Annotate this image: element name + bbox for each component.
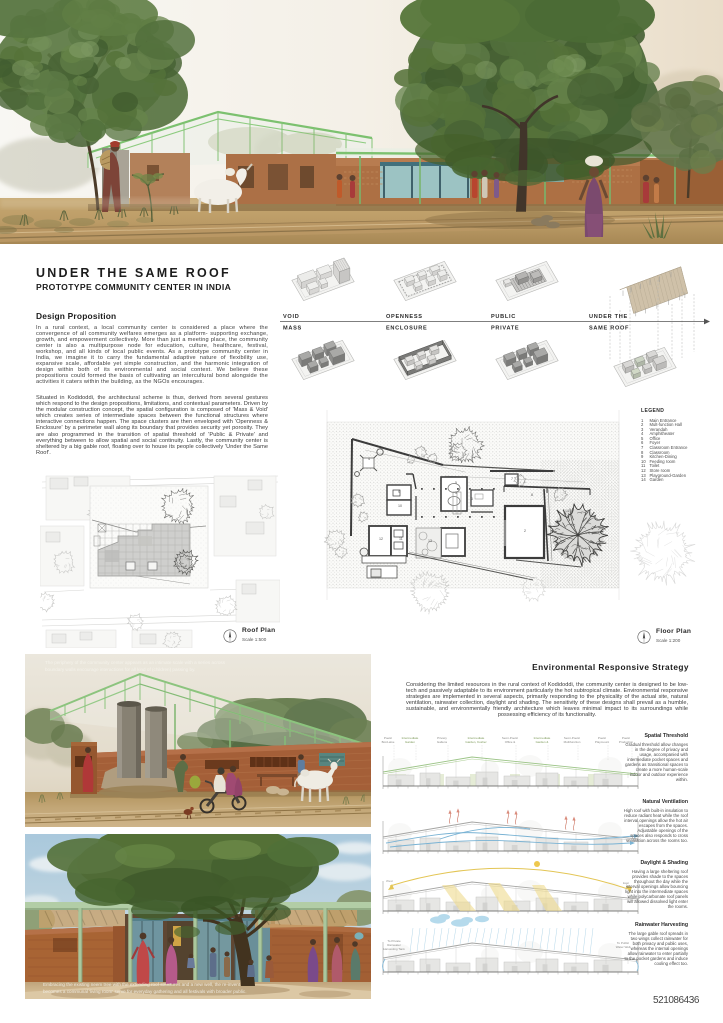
svg-text:Embracing the existing neem tr: Embracing the existing neem tree with th… xyxy=(43,982,241,987)
svg-text:Garden, Kosher: Garden, Kosher xyxy=(465,740,486,744)
svg-text:boundary walls encourage inter: boundary walls encourage interactions fo… xyxy=(45,667,195,672)
svg-text:SAME ROOF: SAME ROOF xyxy=(589,326,629,332)
svg-text:VOID: VOID xyxy=(283,314,299,320)
svg-text:Gallens: Gallens xyxy=(437,740,448,744)
svg-text:West: West xyxy=(386,879,393,883)
svg-text:13: 13 xyxy=(428,539,432,543)
svg-text:Garden: Garden xyxy=(405,740,415,744)
svg-text:becomes a communal 'living roo: becomes a communal 'living room' serve f… xyxy=(43,989,246,994)
svg-text:12: 12 xyxy=(379,537,383,541)
svg-text:Office &: Office & xyxy=(505,740,516,744)
svg-text:Multifunction: Multifunction xyxy=(564,740,581,744)
svg-text:Playmount: Playmount xyxy=(595,740,609,744)
svg-text:3: 3 xyxy=(455,491,457,495)
svg-text:11: 11 xyxy=(399,537,403,541)
svg-text:OPENNESS: OPENNESS xyxy=(386,314,423,320)
svg-text:PRIVATE: PRIVATE xyxy=(491,326,519,332)
svg-text:14: 14 xyxy=(565,509,569,513)
svg-text:7: 7 xyxy=(511,477,513,481)
svg-text:The periphery of the community: The periphery of the community center ap… xyxy=(45,660,226,665)
svg-text:Bord-alve: Bord-alve xyxy=(382,740,395,744)
svg-text:1: 1 xyxy=(413,479,415,483)
svg-text:5: 5 xyxy=(455,481,457,485)
svg-text:Harvesting Tank: Harvesting Tank xyxy=(383,947,405,951)
svg-text:ENCLOSURE: ENCLOSURE xyxy=(386,326,427,332)
svg-text:4: 4 xyxy=(368,457,370,461)
svg-text:UNDER THE: UNDER THE xyxy=(589,314,628,320)
svg-text:MASS: MASS xyxy=(283,326,302,332)
svg-text:PUBLIC: PUBLIC xyxy=(491,314,516,320)
svg-text:Garden &: Garden & xyxy=(536,740,549,744)
svg-text:10: 10 xyxy=(398,504,402,508)
svg-text:6: 6 xyxy=(471,497,473,501)
svg-text:8: 8 xyxy=(531,493,533,497)
svg-text:9: 9 xyxy=(398,490,400,494)
svg-text:2: 2 xyxy=(524,529,526,533)
